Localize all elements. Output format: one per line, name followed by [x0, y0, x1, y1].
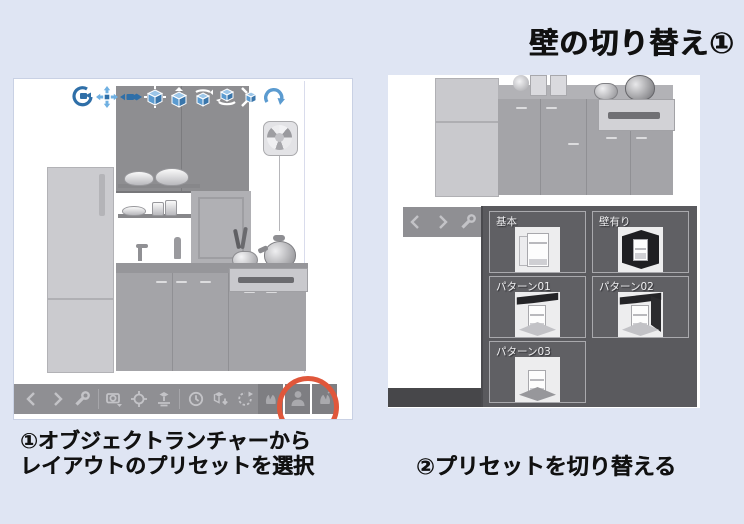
dish: [513, 75, 529, 91]
cabinet-seam: [540, 99, 541, 195]
preset-thumbnail: [515, 292, 560, 337]
preset-empty-slot: [592, 341, 689, 403]
cabinet-door-molding: [198, 197, 244, 259]
refrigerator-door-split: [47, 298, 113, 300]
preset-pattern-01[interactable]: パターン01: [489, 276, 586, 338]
next-icon[interactable]: [429, 209, 455, 235]
cup: [152, 202, 164, 216]
dish: [122, 206, 146, 216]
wall-outlet: [550, 75, 567, 96]
bottom-toolbar-strip: [388, 388, 481, 407]
prev-icon[interactable]: [20, 386, 45, 412]
cabinet-seam: [630, 129, 631, 195]
stove-unit: [229, 268, 308, 292]
kettle-lid: [273, 235, 285, 241]
preset-thumbnail: [515, 357, 560, 402]
import-model-icon[interactable]: [208, 386, 233, 412]
object-launcher-toolbar: [14, 384, 258, 414]
stove-grill-slot: [608, 112, 660, 119]
divider: [98, 389, 99, 409]
wall-outlet: [530, 75, 547, 96]
tutorial-image: 壁の切り替え①: [0, 0, 744, 524]
camera-angle-icon[interactable]: [102, 386, 127, 412]
layout-preset-panel: 基本 壁有り パターン01: [481, 206, 697, 407]
hand-pose-left-icon[interactable]: [258, 384, 283, 414]
fan-cord: [279, 156, 280, 231]
object-rotate-y-icon[interactable]: [191, 85, 214, 109]
preset-pattern-03[interactable]: パターン03: [489, 341, 586, 403]
ventilation-fan: [263, 121, 298, 156]
camera-pan-icon[interactable]: [95, 85, 118, 109]
camera-zoom-icon[interactable]: [119, 85, 142, 109]
caption-step1-line1: ①オブジェクトランチャーから: [20, 429, 314, 454]
preset-thumbnail: [618, 292, 663, 337]
settings-wrench-icon[interactable]: [455, 209, 481, 235]
bottle: [174, 237, 181, 259]
bowl: [124, 171, 154, 186]
caption-step1-line2: レイアウトのプリセットを選択: [20, 454, 314, 479]
refrigerator-door-split: [435, 121, 498, 123]
door-handle: [568, 143, 579, 145]
stove-unit: [598, 99, 675, 131]
caption-step2: ②プリセットを切り替える: [416, 449, 676, 481]
door-handle: [200, 281, 211, 283]
fan-hub: [275, 133, 284, 142]
page-title: 壁の切り替え①: [430, 20, 735, 62]
hand-pose-right-icon[interactable]: [312, 384, 337, 414]
faucet: [138, 247, 142, 261]
pose-timer-icon[interactable]: [183, 386, 208, 412]
preset-thumbnail: [515, 227, 560, 272]
left-viewport-panel[interactable]: [13, 78, 353, 420]
cup: [165, 200, 177, 216]
object-ground-icon[interactable]: [151, 386, 176, 412]
object-move-icon[interactable]: [143, 85, 166, 109]
preset-label: 基本: [496, 214, 517, 229]
camera-orbit-icon[interactable]: [71, 85, 94, 109]
thumb-kitchen: [633, 239, 648, 261]
refrigerator-handle: [99, 174, 105, 216]
thumb-wall-right: [651, 296, 661, 332]
rotate-reset-icon[interactable]: [233, 386, 258, 412]
pose-button-group: [258, 384, 337, 414]
door-handle: [606, 137, 617, 139]
focus-object-icon[interactable]: [127, 386, 152, 412]
thumb-floor: [519, 322, 556, 336]
object-rotate-3d-icon[interactable]: [239, 85, 262, 109]
preset-basic[interactable]: 基本: [489, 211, 586, 273]
door-handle: [546, 107, 557, 109]
door-handle: [156, 281, 167, 283]
thumb-kitchen: [527, 233, 549, 267]
next-icon[interactable]: [45, 386, 70, 412]
cabinet-seam: [586, 99, 587, 195]
refrigerator: [435, 78, 499, 197]
kettle: [625, 75, 655, 101]
body-layout-preset-icon[interactable]: [285, 384, 310, 414]
kitchen-scene-right[interactable]: 基本 壁有り パターン01: [388, 75, 700, 408]
preset-pattern-02[interactable]: パターン02: [592, 276, 689, 338]
cabinet-seam: [172, 273, 173, 371]
door-handle: [636, 137, 647, 139]
thumb-floor: [519, 387, 556, 401]
settings-wrench-icon[interactable]: [70, 386, 95, 412]
caption-step1: ①オブジェクトランチャーから レイアウトのプリセットを選択: [20, 429, 314, 479]
preset-thumbnail: [618, 227, 663, 272]
object-lift-icon[interactable]: [167, 85, 190, 109]
right-viewport-panel[interactable]: 基本 壁有り パターン01: [388, 75, 700, 408]
object-rotate-plane-icon[interactable]: [215, 85, 238, 109]
door-handle: [176, 281, 187, 283]
kitchen-scene-left[interactable]: [14, 79, 352, 419]
prev-icon[interactable]: [403, 209, 429, 235]
reset-view-icon[interactable]: [263, 85, 286, 109]
door-handle: [516, 107, 527, 109]
object-manipulation-toolbar: [71, 85, 286, 109]
divider: [179, 389, 180, 409]
object-launcher-toolbar: [403, 207, 481, 237]
stove-grill-slot: [238, 277, 294, 283]
cooking-pot: [594, 83, 618, 100]
bowl: [155, 168, 189, 186]
preset-with-wall[interactable]: 壁有り: [592, 211, 689, 273]
